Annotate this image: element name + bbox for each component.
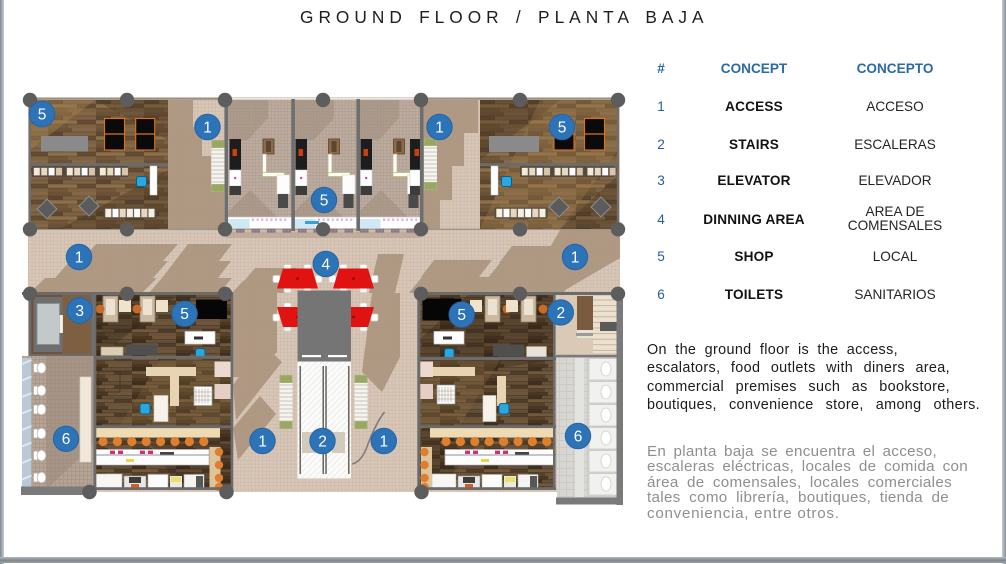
svg-text:5: 5 <box>38 106 47 123</box>
svg-text:4: 4 <box>321 256 330 273</box>
svg-text:1: 1 <box>203 119 212 136</box>
svg-text:1: 1 <box>571 249 580 266</box>
svg-text:5: 5 <box>558 119 567 136</box>
svg-text:1: 1 <box>258 433 267 450</box>
svg-text:3: 3 <box>75 303 84 320</box>
svg-text:2: 2 <box>556 305 565 322</box>
svg-text:1: 1 <box>75 249 84 266</box>
svg-text:2: 2 <box>318 433 327 450</box>
svg-text:1: 1 <box>379 433 388 450</box>
svg-text:6: 6 <box>62 431 71 448</box>
svg-text:5: 5 <box>457 307 466 324</box>
svg-text:5: 5 <box>320 192 329 209</box>
svg-text:1: 1 <box>435 119 444 136</box>
svg-text:6: 6 <box>574 428 583 445</box>
svg-text:5: 5 <box>180 306 189 323</box>
